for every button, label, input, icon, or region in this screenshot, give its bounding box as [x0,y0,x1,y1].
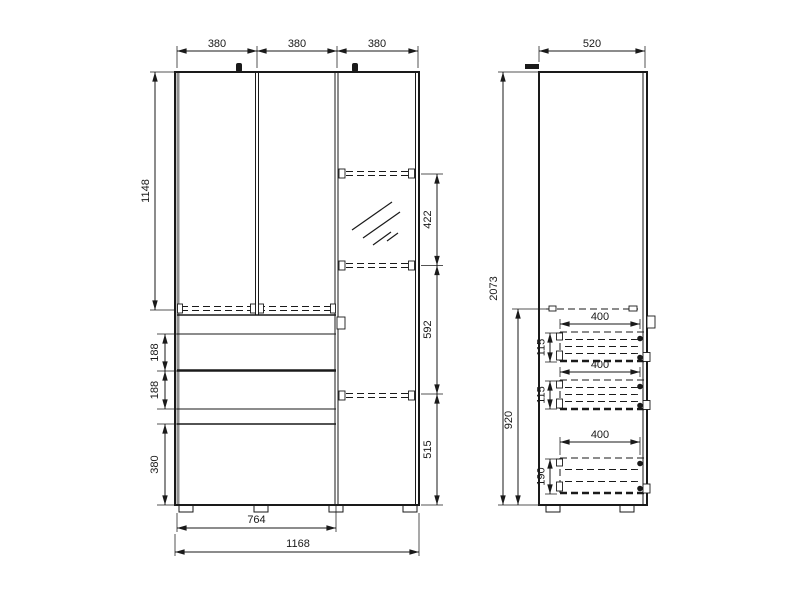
dim-label-lower-unit-height: 920 [503,411,515,429]
dim-label-door-width-1: 380 [208,38,226,50]
dim-label-right-gap-2: 592 [422,320,434,338]
dim-label-drawer-2-height: 115 [536,386,548,404]
side-drawer-3 [557,458,651,493]
dim-label-total-height: 2073 [488,276,500,300]
side-drawer-2 [557,380,651,410]
front-view: 380 380 380 1148 188 188 380 [140,38,443,556]
dim-label-right-gap-3: 515 [422,440,434,458]
side-rail-handle-icon [647,316,655,328]
front-dim-left: 1148 188 188 380 [140,72,177,505]
side-dim-depth: 520 [539,38,645,68]
side-drawer-1 [557,332,651,362]
side-top-knob-icon [525,64,539,69]
dim-label-drawer-height-1: 188 [149,343,161,361]
technical-drawing-page: 380 380 380 1148 188 188 380 [0,0,800,600]
dim-label-drawer-2-depth: 400 [591,359,609,371]
wardrobe-dimension-drawing: 380 380 380 1148 188 188 380 [0,0,800,600]
front-drawer-stack [177,317,345,424]
mirror-icon [352,202,400,245]
dim-label-bottom-drawer-height: 380 [149,455,161,473]
dim-label-depth: 520 [583,38,601,50]
front-hidden-shelves [339,169,415,400]
front-door-bottom-hidden-lines [177,304,336,315]
dim-label-drawer-height-2: 188 [149,381,161,399]
side-cabinet-outline [525,64,647,505]
dim-label-upper-height: 1148 [140,179,152,203]
dim-label-drawer-3-depth: 400 [591,429,609,441]
front-cabinet-outline [175,72,419,505]
dim-label-door-width-2: 380 [288,38,306,50]
front-dim-door-widths: 380 380 380 [177,38,418,68]
dim-label-right-gap-1: 422 [422,210,434,228]
front-dim-bottom: 764 1168 [175,506,419,556]
dim-label-door-width-3: 380 [368,38,386,50]
side-dim-drawer-1: 400 115 [536,311,641,362]
side-view: 520 2073 920 400 115 [488,38,655,512]
front-feet [179,505,417,512]
dim-label-drawer-1-height: 115 [536,339,548,357]
dim-label-total-width: 1168 [286,538,310,550]
rail-handle-icon [337,317,345,329]
side-dim-total-height: 2073 [488,72,544,505]
dim-label-drawer-1-depth: 400 [591,311,609,323]
dim-label-drawer-3-height: 190 [536,467,548,485]
dim-label-drawer-unit-width: 764 [247,514,265,526]
side-feet [546,505,634,512]
door-knob-icon [236,63,358,72]
side-dim-drawer-3: 400 190 [536,429,641,494]
front-dim-right: 422 592 515 [421,174,443,505]
